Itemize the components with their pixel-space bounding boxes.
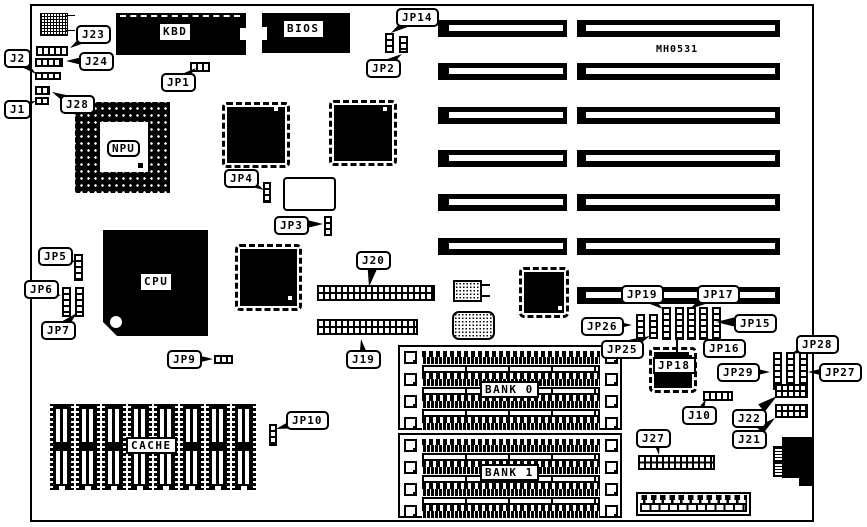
cache-chip-2 <box>76 404 100 490</box>
jumper-jp25 <box>649 314 658 339</box>
connector-j24 <box>35 58 63 67</box>
npu-label: NPU <box>107 140 140 157</box>
keyboard-din-connector <box>782 437 812 478</box>
component-lead <box>66 30 75 31</box>
jumper-jp17 <box>687 307 696 340</box>
isa-slot-6-right <box>577 238 780 255</box>
qfp-chip-1-pin1-dot <box>274 107 278 111</box>
callout-jp2: JP2 <box>366 59 401 78</box>
jumper-j28 <box>35 86 50 95</box>
callout-jp5: JP5 <box>38 247 73 266</box>
simm-clip <box>404 461 417 474</box>
simm-clip <box>404 395 417 408</box>
simm-clip <box>605 461 618 474</box>
jumper-jp2 <box>399 36 408 53</box>
cache-chip-6 <box>180 404 204 490</box>
simm-clip <box>404 351 417 364</box>
qfp-chip-4 <box>519 267 569 318</box>
isa-slot-1-left <box>438 20 567 37</box>
jumper-jp10 <box>269 424 277 446</box>
callout-j28: J28 <box>60 95 95 114</box>
isa-slot-3-right <box>577 107 780 124</box>
oscillator-grid-component <box>40 13 68 36</box>
header-j27 <box>638 455 715 470</box>
callout-j21: J21 <box>732 430 767 449</box>
qfp-chip-4-pin1-dot <box>558 306 562 310</box>
callout-jp27: JP27 <box>819 363 862 382</box>
bank0-label: BANK 0 <box>480 381 539 398</box>
simm-socket <box>422 483 600 496</box>
isa-slot-2-left <box>438 63 567 80</box>
bank1-label: BANK 1 <box>480 464 539 481</box>
callout-j27: J27 <box>636 429 671 448</box>
isa-slot-7-right <box>577 287 780 304</box>
simm-slot-row <box>422 365 600 373</box>
qfp-chip-2-pin1-dot <box>383 107 387 111</box>
callout-j24: J24 <box>79 52 114 71</box>
callout-j2: J2 <box>4 49 31 68</box>
qfp-chip-3 <box>235 244 302 311</box>
isa-slot-2-right <box>577 63 780 80</box>
jumper-jp5 <box>74 254 83 281</box>
simm-socket <box>422 417 600 430</box>
din-connector-tab <box>773 446 784 462</box>
simm-clip <box>404 439 417 452</box>
header-j21 <box>775 404 808 418</box>
isa-slot-5-left <box>438 194 567 211</box>
capacitor-component <box>452 311 495 340</box>
callout-j20: J20 <box>356 251 391 270</box>
jumper-jp6 <box>62 287 71 317</box>
isa-slot-4-left <box>438 150 567 167</box>
jumper-jp16 <box>699 307 708 340</box>
motherboard-jumper-diagram: KBD BIOS NPU CPU <box>0 0 867 527</box>
simm-clip <box>605 417 618 430</box>
callout-j1: J1 <box>4 100 31 119</box>
callout-jp17: JP17 <box>697 285 740 304</box>
callout-jp19: JP19 <box>621 285 664 304</box>
simm-socket <box>422 439 600 452</box>
cache-chip-1 <box>50 404 74 490</box>
cpu-label: CPU <box>141 274 171 290</box>
kbd-label: KBD <box>160 24 190 40</box>
jumper-jp3 <box>324 216 332 236</box>
jumper-jp19 <box>662 307 671 340</box>
simm-socket <box>422 505 600 518</box>
jumper-jp4 <box>263 182 271 203</box>
jumper-j1 <box>35 97 49 105</box>
crystal-lead <box>482 284 490 286</box>
simm-clip <box>605 505 618 518</box>
simm-clip <box>605 483 618 496</box>
callout-j23: J23 <box>76 25 111 44</box>
callout-jp10: JP10 <box>286 411 329 430</box>
din-connector-step <box>799 478 812 486</box>
simm-clip <box>404 417 417 430</box>
callout-jp25: JP25 <box>601 340 644 359</box>
simm-socket <box>422 351 600 364</box>
cache-chip-3 <box>102 404 126 490</box>
bios-chip-notch <box>262 27 267 40</box>
simm-clip <box>605 373 618 386</box>
din-connector-tab <box>773 461 784 477</box>
power-connector <box>636 492 751 516</box>
isa-slot-3-left <box>438 107 567 124</box>
callout-jp29: JP29 <box>717 363 760 382</box>
jumper-jp26 <box>636 314 645 339</box>
header-j22 <box>775 384 808 398</box>
kbd-chip-notch <box>240 28 246 40</box>
board-part-number: MH0531 <box>656 44 698 55</box>
jumper-jp9 <box>214 355 233 364</box>
simm-clip <box>404 505 417 518</box>
callout-jp6: JP6 <box>24 280 59 299</box>
jumper-j10 <box>703 391 733 401</box>
npu-pin1-mark <box>138 163 143 168</box>
isa-slot-6-left <box>438 238 567 255</box>
oscillator-can <box>283 177 336 211</box>
callout-jp4: JP4 <box>224 169 259 188</box>
callout-jp15: JP15 <box>734 314 777 333</box>
cache-label: CACHE <box>126 437 177 454</box>
connector-j2 <box>35 72 61 80</box>
bios-label: BIOS <box>284 21 323 37</box>
power-connector-cells <box>640 503 747 512</box>
isa-slot-1-right <box>577 20 780 37</box>
callout-jp14: JP14 <box>396 8 439 27</box>
header-j19 <box>317 319 418 335</box>
isa-slot-5-right <box>577 194 780 211</box>
simm-slot-row <box>422 409 600 417</box>
simm-clip <box>605 439 618 452</box>
header-j20 <box>317 285 435 301</box>
qfp-chip-3-pin1-dot <box>288 296 292 300</box>
jumper-jp7 <box>75 287 84 317</box>
isa-slot-4-right <box>577 150 780 167</box>
simm-clip <box>605 395 618 408</box>
callout-j19: J19 <box>346 350 381 369</box>
chip-top-dashed-line <box>120 15 240 17</box>
simm-slot-row <box>422 497 600 505</box>
callout-jp7: JP7 <box>41 321 76 340</box>
crystal-oscillator <box>453 280 482 302</box>
qfp-chip-1 <box>222 102 290 168</box>
callout-jp16: JP16 <box>703 339 746 358</box>
callout-jp26: JP26 <box>581 317 624 336</box>
callout-j10: J10 <box>682 406 717 425</box>
callout-jp3: JP3 <box>274 216 309 235</box>
cpu-pin1-circle <box>110 316 122 328</box>
crystal-lead <box>482 295 490 297</box>
jumper-jp15 <box>712 307 721 340</box>
simm-clip <box>404 483 417 496</box>
cache-chip-7 <box>206 404 230 490</box>
cache-chip-8 <box>232 404 256 490</box>
callout-j22: J22 <box>732 409 767 428</box>
simm-clip <box>404 373 417 386</box>
callout-jp18: JP18 <box>653 357 696 374</box>
callout-jp9: JP9 <box>167 350 202 369</box>
component-lead <box>66 15 75 16</box>
jumper-jp18 <box>675 307 684 340</box>
simm-slot-row <box>422 453 600 461</box>
connector-j23 <box>36 46 68 56</box>
jp18-chip-pin1-dot <box>689 351 693 355</box>
jumper-jp14 <box>385 33 394 53</box>
callout-jp28: JP28 <box>796 335 839 354</box>
callout-jp1: JP1 <box>161 73 196 92</box>
